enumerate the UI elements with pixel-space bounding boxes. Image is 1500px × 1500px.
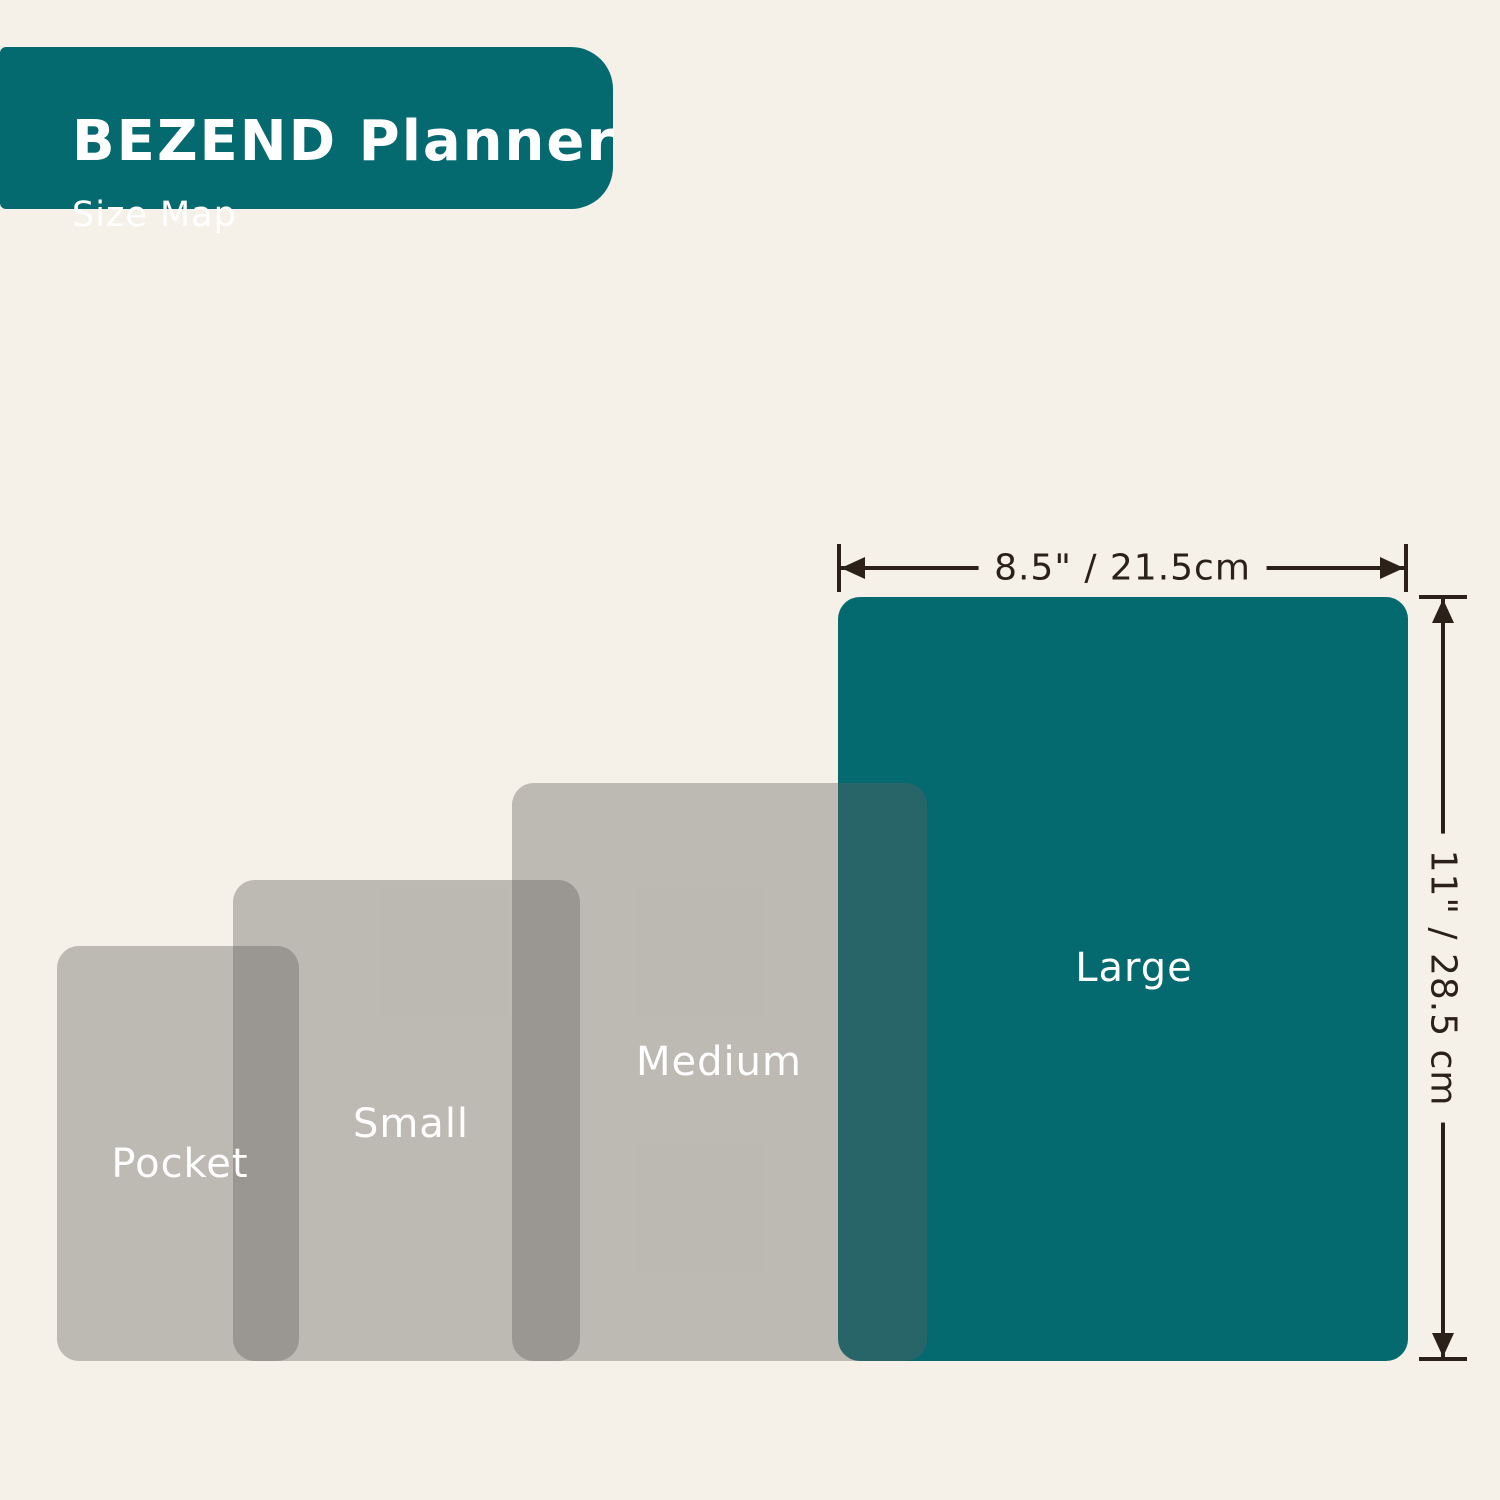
arrow-up-icon — [1432, 599, 1454, 623]
height-dimension-label: 11" / 28.5 cm — [1423, 834, 1464, 1123]
header-badge: BEZEND Planner Size Map — [0, 47, 613, 209]
brand-title: BEZEND Planner — [72, 109, 616, 174]
header-subtitle: Size Map — [72, 195, 237, 235]
arrow-down-icon — [1432, 1333, 1454, 1357]
width-dimension-tick-right — [1404, 544, 1408, 592]
size-map-infographic: BEZEND Planner Size Map Pocket Small Med… — [0, 0, 1500, 1500]
height-dimension: 11" / 28.5 cm — [1419, 595, 1467, 1361]
arrow-left-icon — [841, 557, 865, 579]
width-dimension: 8.5" / 21.5cm — [837, 544, 1408, 592]
width-dimension-label: 8.5" / 21.5cm — [978, 548, 1267, 589]
size-label-large: Large — [1075, 945, 1193, 991]
size-label-medium: Medium — [636, 1039, 802, 1085]
height-dimension-tick-bottom — [1419, 1357, 1467, 1361]
arrow-right-icon — [1380, 557, 1404, 579]
size-label-small: Small — [353, 1101, 469, 1147]
size-label-pocket: Pocket — [111, 1141, 248, 1187]
